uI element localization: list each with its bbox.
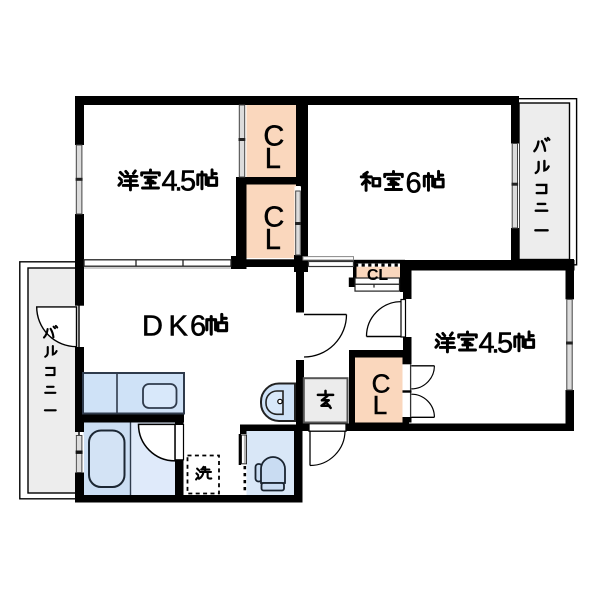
svg-text:L: L xyxy=(373,390,387,420)
svg-text:K: K xyxy=(169,311,189,343)
svg-text:6: 6 xyxy=(190,311,206,343)
svg-text:L: L xyxy=(265,143,281,175)
svg-text:5: 5 xyxy=(180,166,196,198)
svg-text:5: 5 xyxy=(497,328,513,360)
svg-text:6: 6 xyxy=(406,168,422,200)
svg-text:L: L xyxy=(265,224,281,256)
svg-text:CL: CL xyxy=(367,267,389,284)
svg-text:D: D xyxy=(142,311,163,343)
